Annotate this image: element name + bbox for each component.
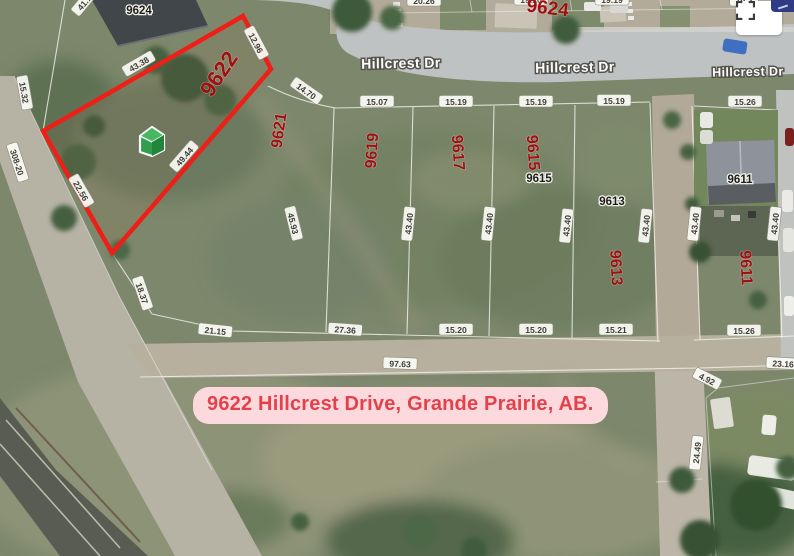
lot-number-label: 9611 bbox=[736, 250, 755, 286]
svg-text:15.07: 15.07 bbox=[366, 97, 388, 107]
house-number-label: 9613 bbox=[599, 196, 625, 208]
street-label: Hillcrest Dr bbox=[361, 54, 441, 71]
svg-text:27.36: 27.36 bbox=[334, 324, 356, 335]
svg-text:23.16: 23.16 bbox=[772, 358, 794, 369]
dimension-label: 15.26 bbox=[728, 96, 762, 108]
dimension-label: 15.20 bbox=[439, 324, 473, 336]
dimension-label: 20.26 bbox=[407, 0, 441, 6]
dimension-label: 15.19 bbox=[519, 96, 553, 108]
svg-text:15.26: 15.26 bbox=[733, 326, 755, 336]
lot-number-label: 9619 bbox=[363, 132, 382, 169]
svg-text:15.19: 15.19 bbox=[603, 96, 625, 106]
satellite-map: 41.143.3812.9649.4422.5615.32308-2018.37… bbox=[0, 0, 794, 556]
svg-text:15.21: 15.21 bbox=[605, 325, 627, 335]
map-viewport[interactable]: 41.143.3812.9649.4422.5615.32308-2018.37… bbox=[0, 0, 794, 556]
dimension-label: 15.21 bbox=[599, 324, 633, 336]
street-label: Hillcrest Dr bbox=[535, 58, 615, 75]
car bbox=[783, 228, 794, 252]
shed bbox=[710, 397, 734, 429]
dimension-label: 27.36 bbox=[328, 322, 363, 336]
car bbox=[784, 296, 794, 316]
dimension-label: 15.20 bbox=[519, 324, 553, 336]
svg-text:97.63: 97.63 bbox=[389, 359, 411, 370]
car bbox=[782, 190, 793, 212]
lot-number-label: 9617 bbox=[448, 134, 467, 171]
lot-number-label: 9613 bbox=[606, 250, 625, 287]
address-banner: 9622 Hillcrest Drive, Grande Prairie, AB… bbox=[193, 387, 608, 424]
house-number-label: 9624 bbox=[126, 5, 152, 17]
svg-text:19.19: 19.19 bbox=[601, 0, 623, 5]
map-control-button[interactable] bbox=[771, 0, 794, 12]
dimension-label: 15.19 bbox=[597, 95, 631, 107]
car bbox=[700, 130, 713, 144]
van bbox=[761, 414, 777, 435]
car bbox=[785, 128, 794, 146]
dimension-label: 23.16 bbox=[766, 357, 794, 370]
svg-text:20.26: 20.26 bbox=[413, 0, 435, 6]
house-number-label: 9615 bbox=[526, 173, 552, 185]
car bbox=[610, 4, 628, 13]
dimension-label: 15.07 bbox=[360, 96, 394, 108]
car bbox=[700, 112, 713, 128]
map-control-partial-icon bbox=[777, 5, 787, 10]
dimension-label: 15.19 bbox=[439, 96, 473, 108]
dimension-label: 97.63 bbox=[383, 357, 417, 370]
fullscreen-icon bbox=[736, 1, 755, 20]
svg-text:15.20: 15.20 bbox=[445, 325, 467, 335]
house-number-label: 9611 bbox=[728, 174, 754, 186]
svg-text:15.19: 15.19 bbox=[525, 97, 547, 107]
street-label: Hillcrest Dr bbox=[712, 64, 784, 79]
svg-text:15.26: 15.26 bbox=[734, 97, 756, 107]
dimension-label: 19.19 bbox=[595, 0, 629, 5]
svg-text:15.20: 15.20 bbox=[525, 325, 547, 335]
dimension-label: 15.26 bbox=[727, 325, 761, 337]
svg-text:15.19: 15.19 bbox=[445, 97, 467, 107]
lot-number-label: 9615 bbox=[523, 134, 542, 171]
